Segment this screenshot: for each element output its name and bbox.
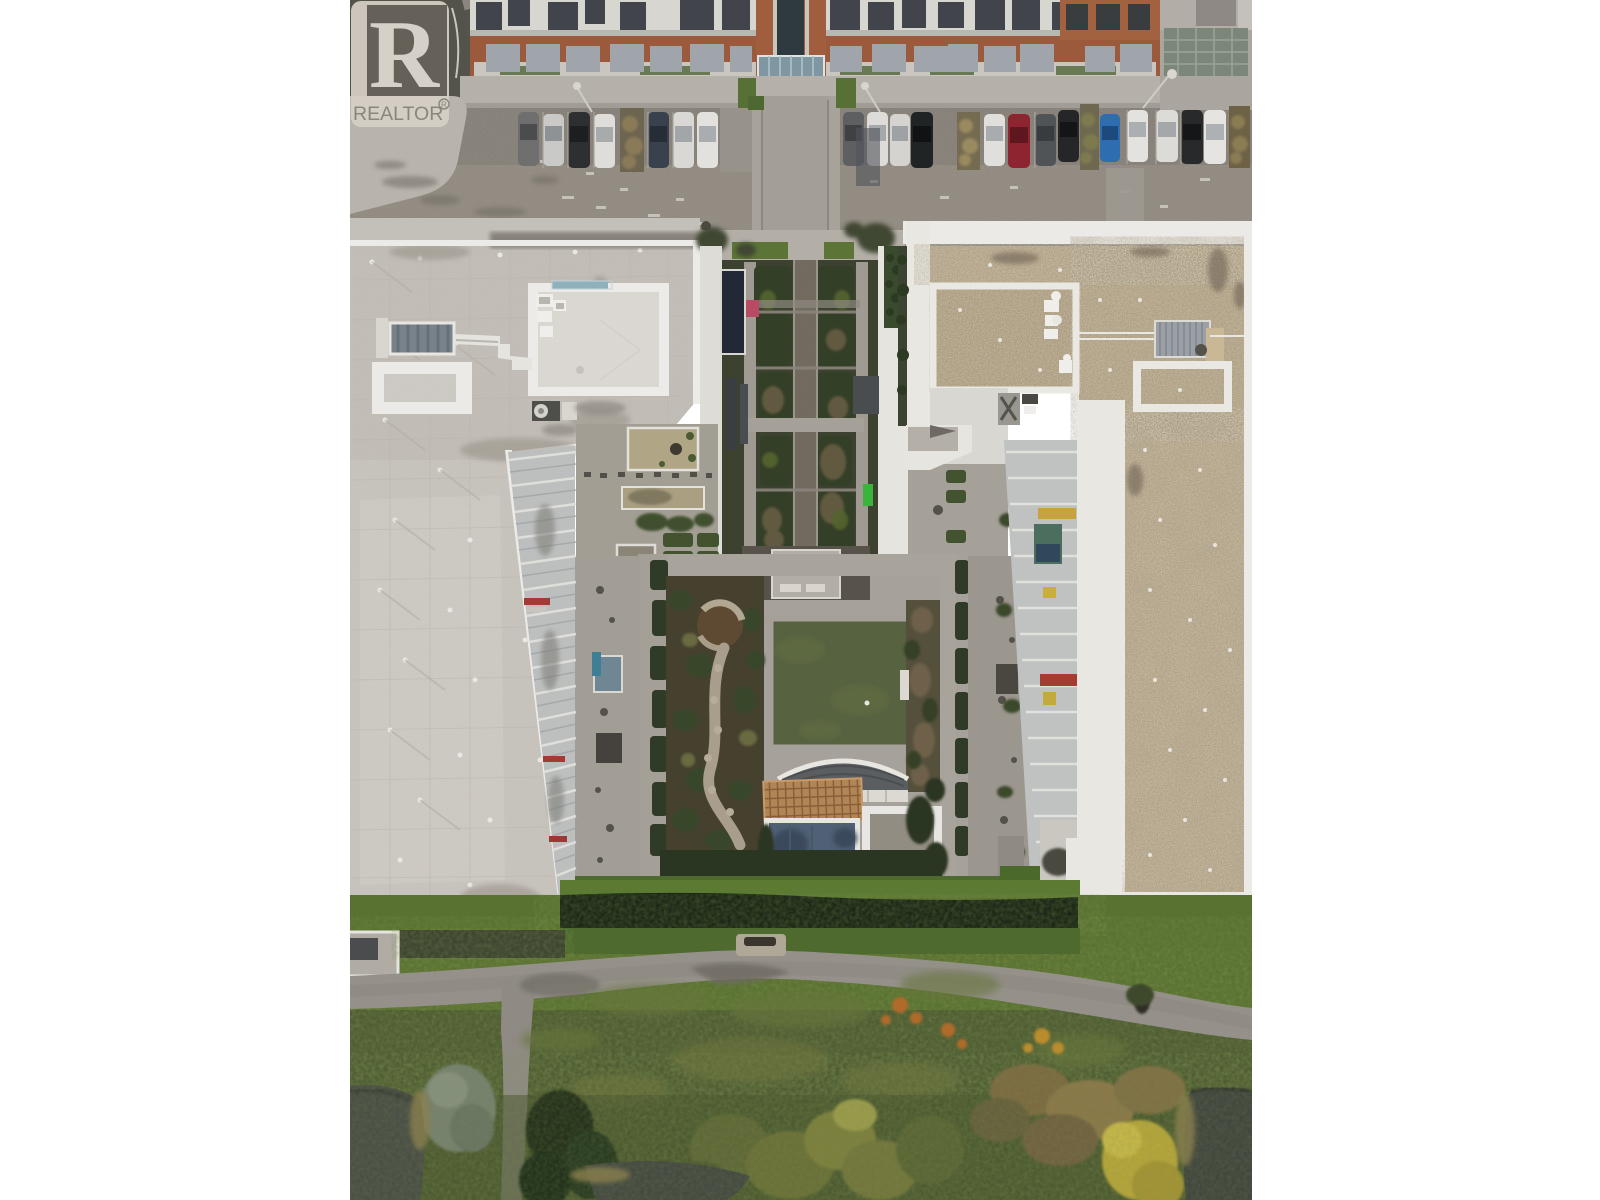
svg-text:REALTOR: REALTOR: [353, 103, 443, 125]
svg-text:R: R: [441, 101, 447, 110]
svg-text:R: R: [369, 1, 440, 108]
